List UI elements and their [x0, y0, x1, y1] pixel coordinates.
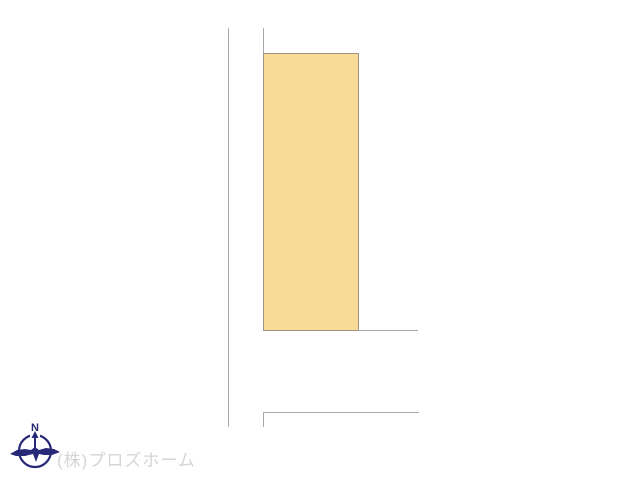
- company-watermark: (株)プロズホーム: [57, 446, 196, 471]
- boundary-line-bottom: [263, 412, 419, 413]
- compass-north-icon: N: [8, 419, 62, 475]
- plot-layout-diagram: N (株)プロズホーム: [0, 0, 640, 480]
- land-plot-rectangle: [263, 53, 359, 331]
- boundary-tick-bottom-left: [263, 412, 264, 427]
- boundary-line-right-of-plot: [358, 330, 418, 331]
- boundary-line-top-segment: [263, 28, 264, 54]
- road-edge-line-left: [228, 28, 229, 427]
